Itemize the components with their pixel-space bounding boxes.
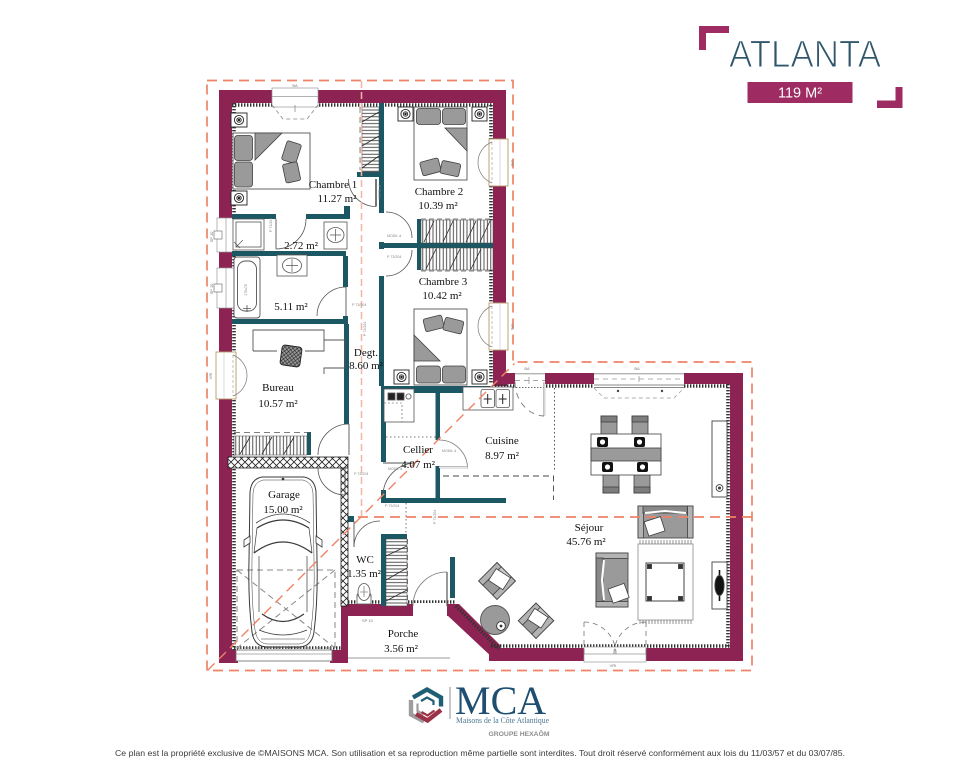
svg-text:P 73/204: P 73/204 bbox=[387, 255, 401, 259]
svg-text:SP 10: SP 10 bbox=[209, 231, 214, 243]
svg-text:VRI: VRI bbox=[510, 160, 515, 167]
svg-text:Chambre 3: Chambre 3 bbox=[419, 276, 468, 288]
svg-text:MODIL d: MODIL d bbox=[387, 234, 401, 238]
svg-text:5.11 m²: 5.11 m² bbox=[274, 301, 308, 313]
svg-text:P 73/204: P 73/204 bbox=[433, 510, 437, 524]
svg-text:Maisons de la Côte Atlantique: Maisons de la Côte Atlantique bbox=[456, 715, 549, 725]
svg-text:P 73/204: P 73/204 bbox=[377, 185, 381, 199]
svg-text:VRI: VRI bbox=[208, 373, 213, 380]
svg-text:8.97 m²: 8.97 m² bbox=[485, 450, 520, 462]
svg-text:Garage: Garage bbox=[268, 489, 300, 501]
svg-text:P 73/204: P 73/204 bbox=[352, 303, 366, 307]
svg-text:4.07 m²: 4.07 m² bbox=[401, 459, 436, 471]
svg-text:119 M²: 119 M² bbox=[778, 86, 822, 102]
svg-text:10.42 m²: 10.42 m² bbox=[422, 290, 462, 302]
svg-text:P 73/204: P 73/204 bbox=[354, 472, 368, 476]
svg-text:SP 10: SP 10 bbox=[362, 618, 374, 623]
svg-text:Chambre 2: Chambre 2 bbox=[415, 186, 464, 198]
svg-text:MODIL d: MODIL d bbox=[388, 467, 402, 471]
svg-text:BA: BA bbox=[524, 366, 530, 371]
svg-text:MODIL d: MODIL d bbox=[442, 449, 456, 453]
svg-text:15.00 m²: 15.00 m² bbox=[263, 504, 303, 516]
svg-text:Degt.: Degt. bbox=[354, 347, 378, 359]
svg-text:8.60 m²: 8.60 m² bbox=[349, 360, 384, 372]
svg-text:Chambre 1: Chambre 1 bbox=[309, 179, 358, 191]
svg-text:2.72 m²: 2.72 m² bbox=[284, 240, 319, 252]
svg-text:Porche: Porche bbox=[388, 628, 419, 640]
svg-text:P 73/204: P 73/204 bbox=[269, 218, 273, 232]
svg-text:3.56 m²: 3.56 m² bbox=[384, 643, 419, 655]
svg-text:Cellier: Cellier bbox=[403, 444, 433, 456]
svg-text:Bureau: Bureau bbox=[262, 382, 294, 394]
svg-text:170x75: 170x75 bbox=[244, 284, 248, 296]
svg-text:GROUPE HEXAÔM: GROUPE HEXAÔM bbox=[489, 729, 550, 738]
svg-text:BA: BA bbox=[634, 366, 640, 371]
svg-text:P 73/204: P 73/204 bbox=[363, 322, 367, 336]
svg-text:WC: WC bbox=[356, 554, 374, 566]
svg-text:Séjour: Séjour bbox=[575, 522, 604, 534]
svg-text:Ce plan est la propriété exclu: Ce plan est la propriété exclusive de ©M… bbox=[115, 748, 845, 758]
svg-text:SP 10: SP 10 bbox=[209, 283, 214, 295]
svg-text:45.76 m²: 45.76 m² bbox=[566, 536, 606, 548]
svg-text:10.57 m²: 10.57 m² bbox=[258, 398, 298, 410]
svg-text:11.27 m²: 11.27 m² bbox=[318, 193, 358, 205]
svg-text:10.39 m²: 10.39 m² bbox=[418, 200, 458, 212]
svg-text:ATLANTA: ATLANTA bbox=[729, 34, 882, 76]
svg-text:Cuisine: Cuisine bbox=[485, 435, 519, 447]
svg-text:P 73/204: P 73/204 bbox=[385, 504, 399, 508]
svg-text:BA: BA bbox=[292, 83, 298, 88]
svg-text:VRI: VRI bbox=[610, 663, 617, 668]
svg-text:1.35 m²: 1.35 m² bbox=[347, 568, 382, 580]
svg-text:VRI: VRI bbox=[510, 324, 515, 331]
